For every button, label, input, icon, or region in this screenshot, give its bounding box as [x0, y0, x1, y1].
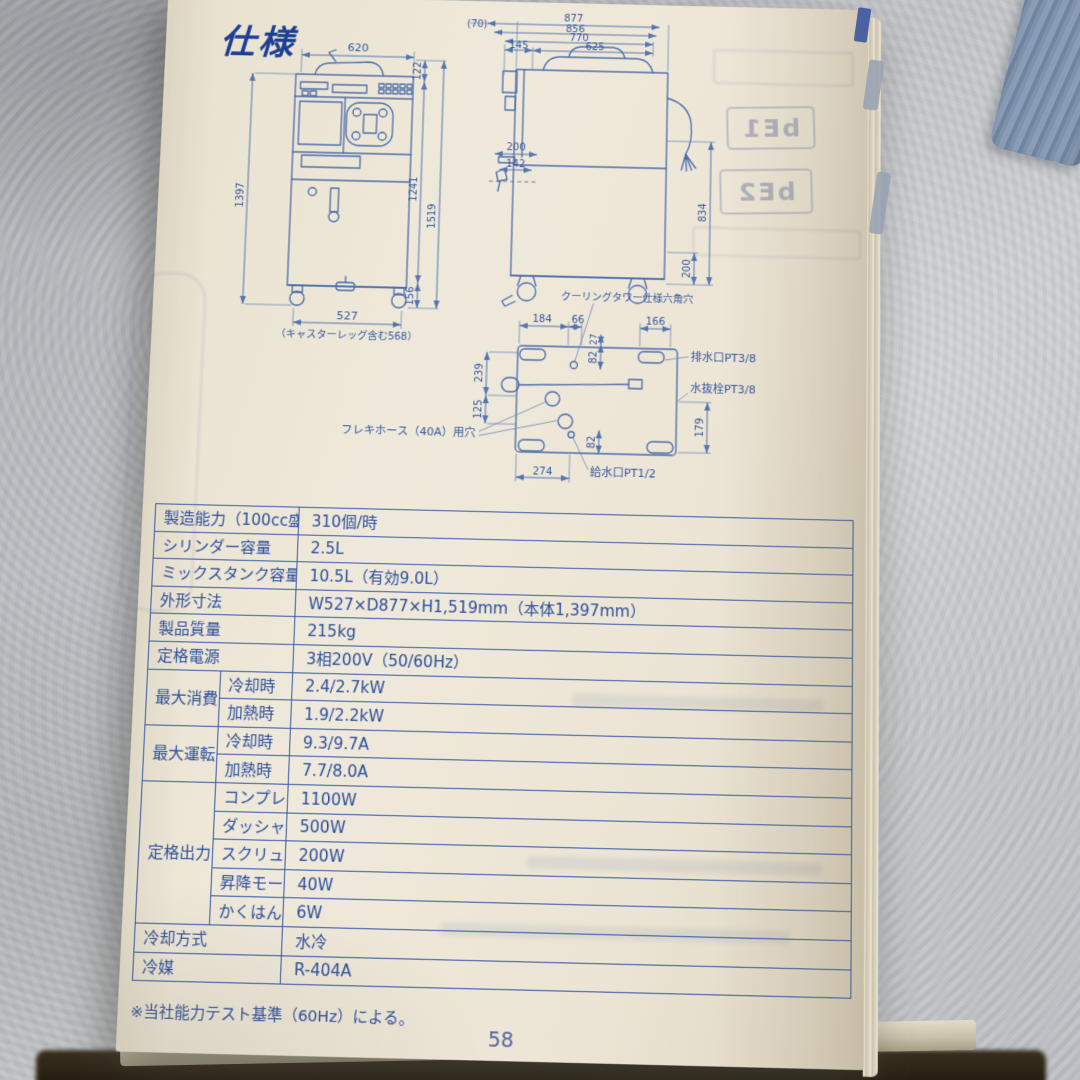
dimension-label: 200: [506, 142, 526, 153]
spec-group-label: 定格出力: [135, 781, 215, 925]
technical-drawing: 620 122 1241 156 1519 1397: [143, 0, 868, 527]
spec-sublabel: 昇降モーター: [210, 868, 285, 898]
dimension-label: 527: [336, 309, 358, 323]
water-supply-label: 給水口PT1/2: [590, 465, 656, 481]
spec-label: 冷却方式: [134, 923, 283, 955]
dimension-label: 1397: [235, 182, 247, 207]
dimension-label: 82: [588, 351, 600, 364]
spec-sublabel: 冷却時: [219, 671, 293, 701]
dimension-label: 200: [682, 259, 694, 278]
photo-background: bE1 bE2 仕様: [0, 0, 1080, 1080]
dimension-label: 82: [586, 436, 598, 449]
dimension-label: 877: [564, 14, 583, 25]
dimension-label: (70): [467, 19, 488, 30]
dimension-caption: （キャスターレッグ含む568）: [275, 327, 417, 343]
dimension-label: 142: [506, 159, 526, 170]
footnote: ※当社能力テスト基準（60Hz）による。: [130, 999, 415, 1029]
dimension-label: 625: [585, 42, 604, 53]
dimension-label: 620: [347, 41, 369, 54]
spec-table: 製造能力（100cc盛り）※ 310個/時 シリンダー容量 2.5L ミックスタ…: [132, 503, 854, 999]
spec-group-label: 最大消費電力: [145, 669, 220, 727]
scene: bE1 bE2 仕様: [0, 0, 1080, 1080]
spec-label: 定格電源: [148, 641, 294, 672]
dimension-label: 27: [590, 334, 600, 346]
booklet-page: bE1 bE2 仕様: [116, 0, 868, 1070]
spec-sublabel: コンプレッサー: [214, 782, 288, 812]
dimension-label: 834: [698, 203, 709, 222]
spec-sublabel: 冷却時: [216, 726, 290, 756]
spec-label: 製品質量: [149, 613, 295, 644]
dimension-label: 122: [412, 62, 424, 81]
dimension-label: 145: [509, 40, 528, 51]
side-view: [485, 45, 697, 311]
dimension-label: 184: [532, 314, 552, 325]
dimension-label: 125: [473, 399, 485, 419]
dimension-label: 274: [533, 466, 553, 478]
dimension-label: 156: [405, 286, 417, 305]
dimension-label: 1519: [427, 203, 439, 228]
spec-sublabel: スクリューモーター: [211, 839, 286, 869]
dimension-label: 179: [695, 418, 707, 438]
spec-label: 製造能力（100cc盛り）※: [154, 504, 299, 535]
dimension-label: 1241: [408, 176, 420, 201]
dimension-label: 66: [571, 315, 584, 326]
spec-sublabel: 加熱時: [215, 754, 289, 784]
spec-sublabel: 加熱時: [218, 698, 292, 728]
spec-sublabel: かくはんモーター: [209, 896, 284, 926]
spec-label: シリンダー容量: [153, 531, 298, 562]
spec-label: ミックスタンク容量: [152, 558, 297, 589]
cooling-tower-hole-label: クーリングタワー仕様六角穴: [561, 290, 694, 306]
side-view-dimensions: 877 856 770 145 625 (70) 200 142: [459, 11, 716, 285]
spec-label: 冷媒: [132, 952, 281, 985]
drain-port-label: 排水口PT3/8: [691, 350, 757, 366]
spec-group-label: 最大運転電流: [142, 725, 217, 783]
spec-label: 外形寸法: [150, 586, 296, 617]
water-plug-label: 水抜栓PT3/8: [690, 381, 756, 397]
front-view: [286, 49, 414, 308]
page-number: 58: [468, 1027, 533, 1053]
flex-hose-hole-label: フレキホース（40A）用穴: [341, 422, 476, 439]
dimension-label: 166: [646, 317, 666, 329]
dimension-label: 239: [474, 363, 486, 382]
spec-sublabel: ダッシャーモーター: [213, 811, 287, 841]
